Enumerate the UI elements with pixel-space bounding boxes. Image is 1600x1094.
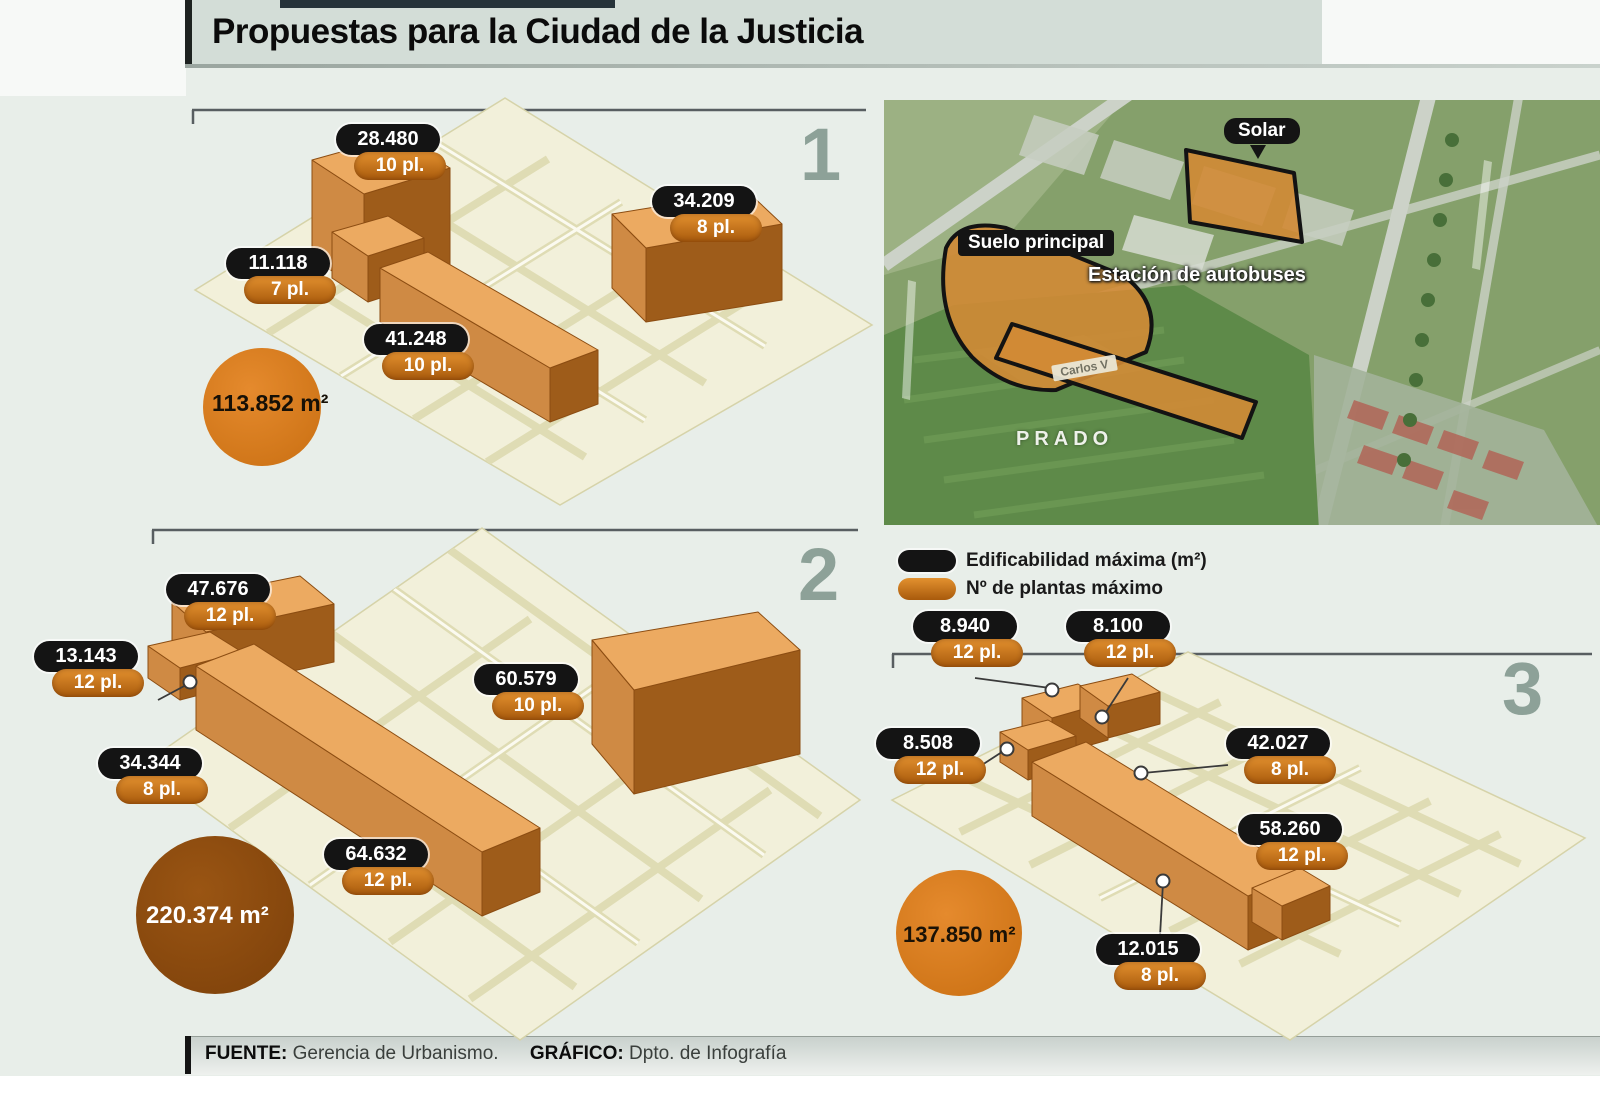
- panel-3-number: 3: [1502, 652, 1543, 726]
- area-label: 42.027: [1226, 728, 1330, 759]
- title-underline: [185, 64, 1600, 68]
- fuente-value: Gerencia de Urbanismo.: [287, 1043, 498, 1064]
- black-pill-swatch: [898, 550, 956, 572]
- building-label-group: 64.632 12 pl.: [324, 839, 434, 895]
- total-area-value: 113.852 m²: [212, 390, 328, 417]
- floors-label: 12 pl.: [1256, 842, 1348, 870]
- building-label-group: 47.676 12 pl.: [166, 574, 276, 630]
- area-label: 58.260: [1238, 814, 1342, 845]
- area-label: 64.632: [324, 839, 428, 870]
- page-title: Propuestas para la Ciudad de la Justicia: [212, 12, 863, 52]
- grafico-label: GRÁFICO:: [530, 1043, 624, 1064]
- floors-label: 10 pl.: [492, 692, 584, 720]
- area-label: 28.480: [336, 124, 440, 155]
- area-label: 60.579: [474, 664, 578, 695]
- floors-label: 12 pl.: [342, 867, 434, 895]
- area-label: 47.676: [166, 574, 270, 605]
- building-label-group: 28.480 10 pl.: [336, 124, 446, 180]
- floors-label: 10 pl.: [382, 352, 474, 380]
- building-label-group: 8.508 12 pl.: [876, 728, 986, 784]
- floors-label: 12 pl.: [52, 669, 144, 697]
- floors-label: 12 pl.: [894, 756, 986, 784]
- area-label: 8.940: [913, 611, 1017, 642]
- building-label-group: 34.344 8 pl.: [98, 748, 208, 804]
- floors-label: 8 pl.: [1114, 962, 1206, 990]
- building-label-group: 13.143 12 pl.: [34, 641, 144, 697]
- building-label-group: 8.100 12 pl.: [1066, 611, 1176, 667]
- solar-label: Solar: [1224, 118, 1300, 144]
- suelo-principal-label: Suelo principal: [958, 230, 1114, 256]
- building-label-group: 12.015 8 pl.: [1096, 934, 1206, 990]
- legend-plantas-label: Nº de plantas máximo: [966, 578, 1163, 600]
- area-label: 8.100: [1066, 611, 1170, 642]
- satellite-map-art: [884, 100, 1600, 525]
- building-label-group: 60.579 10 pl.: [474, 664, 584, 720]
- building-label-group: 42.027 8 pl.: [1226, 728, 1336, 784]
- top-left-margin: [0, 0, 186, 96]
- prado-label: PRADO: [1016, 428, 1113, 451]
- footer-left-tick: [185, 1036, 191, 1074]
- building-label-group: 34.209 8 pl.: [652, 186, 762, 242]
- building-label-group: 58.260 12 pl.: [1238, 814, 1348, 870]
- satellite-map: [884, 100, 1600, 525]
- area-label: 34.344: [98, 748, 202, 779]
- estacion-autobuses-label: Estación de autobuses: [1088, 264, 1306, 287]
- legend-row-plantas: Nº de plantas máximo: [898, 578, 1207, 600]
- orange-pill-swatch: [898, 578, 956, 600]
- total-area-value: 220.374 m²: [146, 902, 269, 930]
- floors-label: 7 pl.: [244, 276, 336, 304]
- title-top-strip: [280, 0, 615, 8]
- area-label: 41.248: [364, 324, 468, 355]
- fuente-label: FUENTE:: [205, 1043, 287, 1064]
- building-label-group: 11.118 7 pl.: [226, 248, 336, 304]
- footer-credits: FUENTE: Gerencia de Urbanismo. GRÁFICO: …: [205, 1043, 786, 1065]
- panel-2-number: 2: [798, 538, 839, 612]
- legend-row-edificabilidad: Edificabilidad máxima (m²): [898, 550, 1207, 572]
- legend-edificabilidad-label: Edificabilidad máxima (m²): [966, 550, 1207, 572]
- building-label-group: 8.940 12 pl.: [913, 611, 1023, 667]
- area-label: 12.015: [1096, 934, 1200, 965]
- legend: Edificabilidad máxima (m²) Nº de plantas…: [898, 550, 1207, 606]
- title-bar-right-margin: [1322, 0, 1600, 64]
- floors-label: 12 pl.: [1084, 639, 1176, 667]
- building-label-group: 41.248 10 pl.: [364, 324, 474, 380]
- title-left-tick: [185, 0, 192, 64]
- floors-label: 12 pl.: [184, 602, 276, 630]
- area-label: 11.118: [226, 248, 330, 279]
- area-label: 8.508: [876, 728, 980, 759]
- panel-1-number: 1: [800, 118, 841, 192]
- area-label: 34.209: [652, 186, 756, 217]
- floors-label: 12 pl.: [931, 639, 1023, 667]
- floors-label: 8 pl.: [1244, 756, 1336, 784]
- floors-label: 10 pl.: [354, 152, 446, 180]
- total-area-value: 137.850 m²: [903, 922, 1016, 948]
- infographic-canvas: Propuestas para la Ciudad de la Justicia…: [0, 0, 1600, 1094]
- floors-label: 8 pl.: [670, 214, 762, 242]
- solar-pointer: [1250, 145, 1266, 159]
- grafico-value: Dpto. de Infografía: [624, 1043, 787, 1064]
- area-label: 13.143: [34, 641, 138, 672]
- floors-label: 8 pl.: [116, 776, 208, 804]
